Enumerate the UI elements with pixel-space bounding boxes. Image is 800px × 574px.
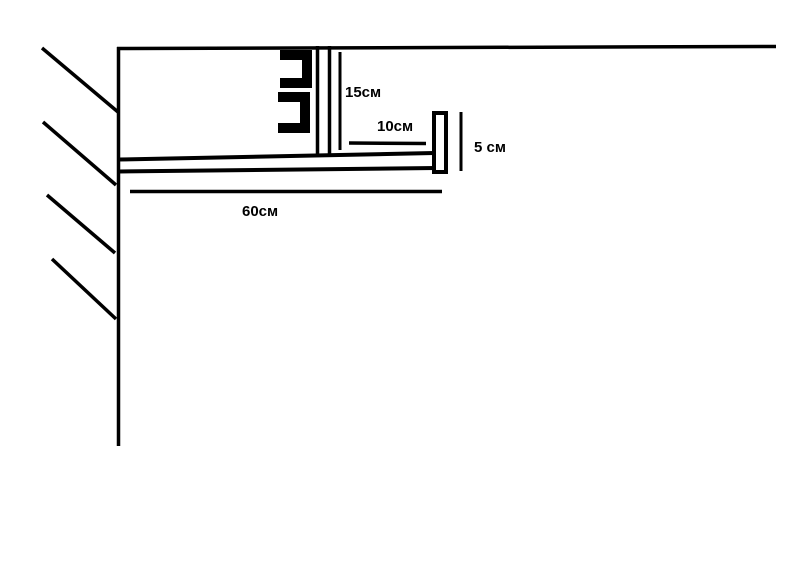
wall-hatching xyxy=(42,48,118,319)
ceiling-niche-diagram: 15см 10см 5 см 60см xyxy=(0,0,800,574)
mounting-bracket xyxy=(278,50,312,133)
dim-label-60cm: 60см xyxy=(242,203,278,220)
shelf-end-lip xyxy=(434,113,446,172)
diagram-page: 15см 10см 5 см 60см xyxy=(0,0,800,574)
shelf xyxy=(119,153,436,172)
dim-label-10cm: 10см xyxy=(377,118,413,135)
hatch-line xyxy=(47,195,115,253)
shelf-top-line xyxy=(119,153,434,160)
ceiling-line xyxy=(117,47,776,49)
dim-label-5cm: 5 см xyxy=(474,139,506,156)
bracket-upper-profile xyxy=(280,50,312,88)
dim-label-15cm: 15см xyxy=(345,84,381,101)
hatch-line xyxy=(52,259,116,319)
dim-line-10cm xyxy=(349,143,426,144)
hatch-line xyxy=(43,122,116,185)
hatch-line xyxy=(42,48,118,112)
curtain-channel xyxy=(318,46,330,157)
bracket-lower-profile xyxy=(278,92,310,133)
shelf-bottom-line xyxy=(119,168,436,172)
